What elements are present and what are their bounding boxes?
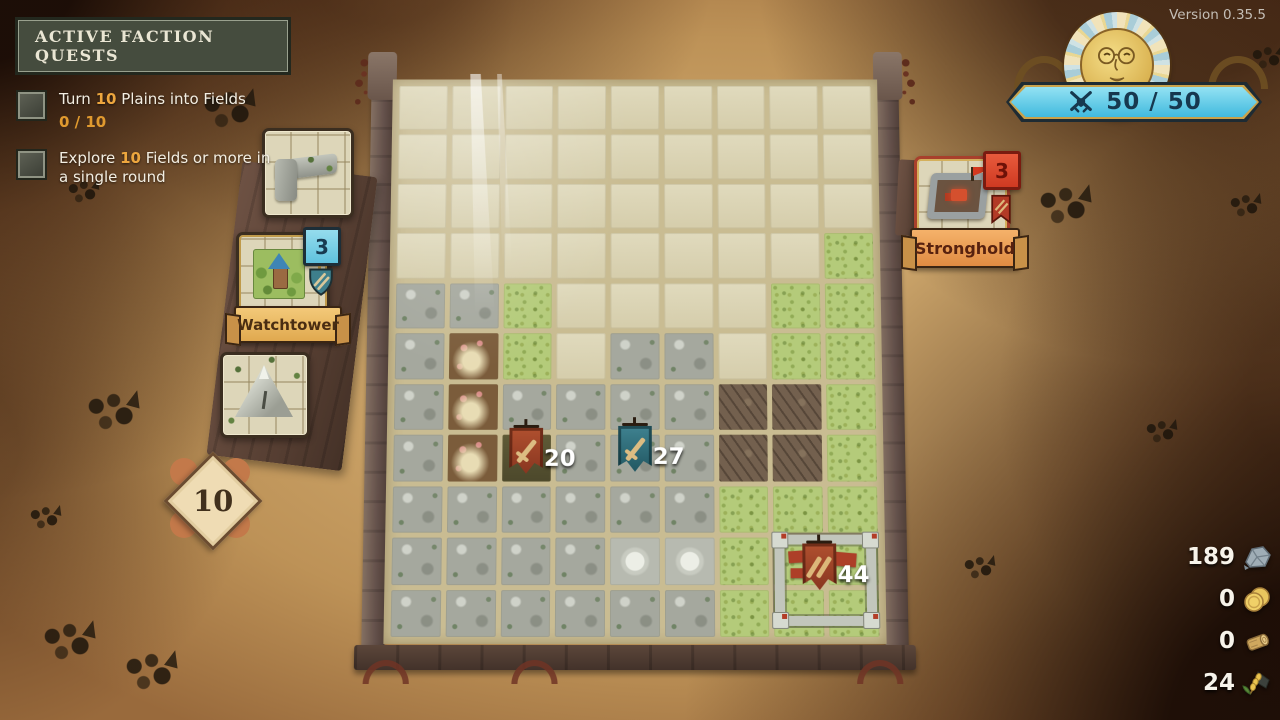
resource-stone: 189 bbox=[1187, 542, 1272, 572]
quest-target-number: 10 bbox=[120, 149, 141, 167]
board-tile-battlefield[interactable] bbox=[719, 435, 769, 481]
board-tile-grass[interactable] bbox=[825, 283, 874, 328]
board-tile-rock[interactable] bbox=[555, 538, 605, 585]
board-tile-empty-plains[interactable] bbox=[717, 135, 766, 179]
board-tile-empty-plains[interactable] bbox=[397, 184, 446, 229]
board-tile-rock[interactable] bbox=[500, 590, 550, 637]
board-tile-rock[interactable] bbox=[391, 538, 441, 585]
board-tile-rock[interactable] bbox=[556, 486, 606, 533]
stone-icon bbox=[1242, 542, 1272, 572]
board-tile-rock[interactable] bbox=[396, 283, 445, 328]
board-tile-rock[interactable] bbox=[394, 384, 444, 430]
board-tile-rock[interactable] bbox=[393, 435, 443, 481]
war-meter-fill: 50 / 50 bbox=[1011, 87, 1257, 117]
board-tile-grass[interactable] bbox=[773, 486, 823, 533]
board-tile-empty-plains[interactable] bbox=[451, 135, 500, 179]
board-tile-crater[interactable] bbox=[665, 538, 715, 585]
board-tile-empty-plains[interactable] bbox=[823, 135, 872, 179]
quest-checkbox[interactable] bbox=[18, 151, 45, 178]
watchtower-count-badge: 3 bbox=[303, 227, 341, 266]
wheat-icon bbox=[1242, 668, 1272, 698]
board-tile-grass[interactable] bbox=[719, 486, 769, 533]
board-tile-farm-field[interactable] bbox=[447, 435, 497, 481]
crossed-axes-icon bbox=[808, 555, 830, 579]
board-tile-empty-plains[interactable] bbox=[718, 283, 767, 328]
board-tile-rock[interactable] bbox=[665, 486, 715, 533]
board-tile-rock[interactable] bbox=[665, 590, 715, 637]
board-tile-empty-plains[interactable] bbox=[505, 86, 553, 130]
board-tile-empty-plains[interactable] bbox=[558, 86, 606, 130]
board-tile-empty-plains[interactable] bbox=[504, 233, 553, 278]
board-tile-empty-plains[interactable] bbox=[664, 184, 713, 229]
board-tile-rock[interactable] bbox=[449, 283, 498, 328]
board-tile-farm-field[interactable] bbox=[449, 333, 498, 379]
banner-cloth bbox=[509, 428, 543, 477]
board-tile-empty-plains[interactable] bbox=[822, 86, 871, 130]
board-tile-rock[interactable] bbox=[555, 590, 605, 637]
shield-icon bbox=[309, 267, 333, 296]
log-icon bbox=[1242, 626, 1272, 656]
board-tile-rock[interactable] bbox=[664, 333, 713, 379]
board-tile-grass[interactable] bbox=[827, 435, 877, 481]
board-tile-rock[interactable] bbox=[501, 486, 551, 533]
board-tile-empty-plains[interactable] bbox=[557, 233, 606, 278]
board-tile-empty-plains[interactable] bbox=[664, 86, 712, 130]
game-screen: ACTIVE FACTION QUESTS Turn 10 Plains int… bbox=[0, 0, 1280, 720]
board-tile-grass[interactable] bbox=[826, 333, 876, 379]
board-tile-battlefield[interactable] bbox=[772, 384, 822, 430]
board-tile-empty-plains[interactable] bbox=[558, 135, 606, 179]
tiles-remaining-diamond: 10 bbox=[164, 452, 263, 551]
quest-item: Explore 10 Fields or more in a single ro… bbox=[18, 149, 288, 188]
army-strength: 27 bbox=[653, 444, 685, 469]
quest-text-segment: Plains into Fields bbox=[116, 90, 245, 108]
board-tile-empty-plains[interactable] bbox=[611, 233, 660, 278]
moss-specks bbox=[223, 355, 307, 435]
board-tile-rock[interactable] bbox=[664, 384, 713, 430]
board-tile-rock[interactable] bbox=[445, 590, 495, 637]
sword-icon bbox=[625, 437, 646, 462]
board-tile-rock[interactable] bbox=[446, 538, 496, 585]
pennant-icon bbox=[990, 194, 1012, 224]
board-tile-rock[interactable] bbox=[392, 486, 442, 533]
board-tile-empty-plains[interactable] bbox=[611, 86, 659, 130]
watchtower-card-label: Watchtower bbox=[234, 306, 342, 343]
board-tile-grass[interactable] bbox=[828, 486, 878, 533]
fortress: 44 bbox=[774, 535, 877, 626]
army-banner-teal: 27 bbox=[618, 423, 652, 480]
board-tile-empty-plains[interactable] bbox=[557, 283, 606, 328]
board-tile-rock[interactable] bbox=[610, 590, 660, 637]
army-strength: 44 bbox=[837, 562, 869, 588]
army-banner-red: 20 bbox=[509, 425, 543, 482]
resource-wheat-value: 24 bbox=[1203, 670, 1235, 696]
board-tile-empty-plains[interactable] bbox=[718, 233, 767, 278]
resource-panel: 189 0 0 bbox=[1187, 542, 1272, 698]
banner-cloth bbox=[802, 544, 837, 594]
war-meter: 50 / 50 bbox=[1006, 82, 1262, 122]
board-tile-grass[interactable] bbox=[771, 283, 820, 328]
board-tile-battlefield[interactable] bbox=[718, 384, 767, 430]
quest-checkbox[interactable] bbox=[18, 92, 45, 119]
resource-wheat: 24 bbox=[1187, 668, 1272, 698]
board-tile-empty-plains[interactable] bbox=[664, 233, 713, 278]
carved-curls bbox=[902, 59, 910, 66]
sword-icon bbox=[516, 439, 537, 464]
resource-wood-value: 0 bbox=[1219, 628, 1235, 654]
quest-text-segment: Explore bbox=[59, 149, 120, 167]
quest-text: Explore 10 Fields or more in a single ro… bbox=[59, 149, 281, 188]
board-tile-empty-plains[interactable] bbox=[399, 86, 448, 130]
board-tile-rock[interactable] bbox=[447, 486, 497, 533]
quest-item: Turn 10 Plains into Fields 0 / 10 bbox=[18, 90, 288, 131]
board-tile-empty-plains[interactable] bbox=[664, 283, 713, 328]
quest-text: Turn 10 Plains into Fields bbox=[59, 90, 246, 110]
active-faction-quests-panel: ACTIVE FACTION QUESTS Turn 10 Plains int… bbox=[18, 20, 288, 188]
board-tile-rock[interactable] bbox=[391, 590, 441, 637]
stronghold-flag bbox=[971, 167, 974, 181]
board-tile-empty-plains[interactable] bbox=[504, 184, 553, 229]
board-tile-farm-field[interactable] bbox=[448, 384, 498, 430]
tiles-remaining-counter: 10 bbox=[164, 452, 256, 544]
resource-stone-value: 189 bbox=[1187, 544, 1235, 570]
board-tile-empty-plains[interactable] bbox=[611, 283, 660, 328]
board-tile-empty-plains[interactable] bbox=[770, 135, 819, 179]
board-tile-grass[interactable] bbox=[720, 590, 770, 637]
watchtower-art bbox=[253, 249, 305, 299]
quest-text-segment: Turn bbox=[59, 90, 96, 108]
board-tile-empty-plains[interactable] bbox=[450, 233, 499, 278]
board-tile-rock[interactable] bbox=[610, 333, 659, 379]
board-tile-rock[interactable] bbox=[395, 333, 445, 379]
board-tile-empty-plains[interactable] bbox=[717, 184, 766, 229]
board-tile-grass[interactable] bbox=[824, 233, 873, 278]
board-tile-battlefield[interactable] bbox=[773, 435, 823, 481]
quest-progress: 0 / 10 bbox=[59, 113, 246, 131]
resource-gold: 0 bbox=[1187, 584, 1272, 614]
board-tile-rock[interactable] bbox=[556, 384, 605, 430]
hand-card-mountain[interactable] bbox=[220, 352, 310, 438]
quest-target-number: 10 bbox=[96, 90, 117, 108]
fortress-banner: 44 bbox=[802, 541, 837, 598]
board-tile-grass[interactable] bbox=[503, 283, 552, 328]
stronghold-art bbox=[927, 171, 989, 221]
bush-specks bbox=[253, 249, 305, 299]
board-tile-empty-plains[interactable] bbox=[557, 333, 606, 379]
fortress-tower bbox=[862, 532, 879, 549]
board-tile-empty-plains[interactable] bbox=[557, 184, 606, 229]
tiles-remaining-value: 10 bbox=[193, 484, 233, 518]
army-strength: 20 bbox=[544, 446, 576, 471]
board-tile-grass[interactable] bbox=[503, 333, 552, 379]
coins-icon bbox=[1242, 584, 1272, 614]
board-tile-empty-plains[interactable] bbox=[504, 135, 553, 179]
board-tile-empty-plains[interactable] bbox=[718, 333, 767, 379]
quests-panel-title: ACTIVE FACTION QUESTS bbox=[18, 20, 288, 72]
resource-gold-value: 0 bbox=[1219, 586, 1235, 612]
board-tile-grass[interactable] bbox=[826, 384, 876, 430]
fortress-tower bbox=[771, 532, 788, 549]
banner-cloth bbox=[618, 426, 652, 475]
board-tile-rock[interactable] bbox=[610, 486, 660, 533]
board-tile-empty-plains[interactable] bbox=[398, 135, 447, 179]
stronghold-count-badge: 3 bbox=[983, 151, 1021, 190]
board-tile-empty-plains[interactable] bbox=[611, 184, 659, 229]
board-frame-bottom bbox=[354, 645, 916, 670]
board-tile-crater[interactable] bbox=[610, 538, 660, 585]
board-tile-empty-plains[interactable] bbox=[824, 184, 873, 229]
version-label: Version 0.35.5 bbox=[1169, 7, 1266, 23]
war-meter-value: 50 / 50 bbox=[1106, 89, 1201, 115]
resource-wood: 0 bbox=[1187, 626, 1272, 656]
game-board: 20 27 44 bbox=[361, 63, 909, 670]
board-tile-empty-plains[interactable] bbox=[396, 233, 445, 278]
stronghold-card-label: Stronghold bbox=[910, 228, 1020, 268]
board-tile-empty-plains[interactable] bbox=[451, 184, 500, 229]
fortress-tower bbox=[772, 612, 789, 629]
board-tile-grass[interactable] bbox=[719, 538, 769, 585]
board-tile-empty-plains[interactable] bbox=[717, 86, 765, 130]
board-tile-empty-plains[interactable] bbox=[611, 135, 659, 179]
board-tile-empty-plains[interactable] bbox=[770, 184, 819, 229]
board-tile-empty-plains[interactable] bbox=[664, 135, 712, 179]
board-tile-empty-plains[interactable] bbox=[771, 233, 820, 278]
fortress-tower bbox=[863, 612, 880, 629]
crossed-swords-icon bbox=[1066, 89, 1096, 115]
board-tile-grass[interactable] bbox=[772, 333, 821, 379]
board-tile-rock[interactable] bbox=[501, 538, 551, 585]
board-tile-empty-plains[interactable] bbox=[452, 86, 501, 130]
board-tile-empty-plains[interactable] bbox=[770, 86, 819, 130]
